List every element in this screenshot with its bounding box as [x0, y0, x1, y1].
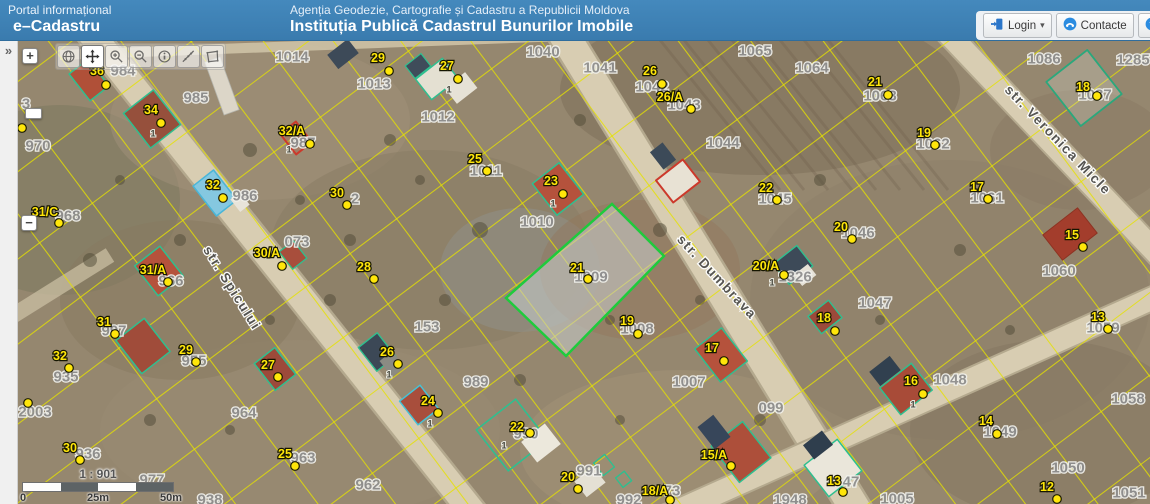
point-dot	[385, 67, 394, 76]
overview-globe-tool-button[interactable]	[57, 45, 80, 68]
point-label: 26	[643, 64, 657, 78]
parcel-number: 073	[284, 234, 309, 251]
point-dot	[434, 409, 443, 418]
point-dot	[76, 456, 85, 465]
map-canvas[interactable]: str. Spiculuistr. Dumbravastr. Veronica …	[18, 40, 1150, 504]
point-label: 19	[917, 126, 931, 140]
parcel-number: 1007	[672, 374, 705, 391]
point-dot	[291, 462, 300, 471]
parcel-number: 964	[231, 405, 257, 422]
point-sublabel: 1	[386, 370, 392, 381]
point-label: 20/A	[753, 259, 779, 273]
brand: Portal informațional e–Cadastru	[8, 3, 111, 36]
parcel-number: 985	[183, 90, 208, 107]
parcel-number: 1014	[275, 49, 309, 66]
parcel-number: 2	[351, 191, 359, 208]
point-label: 32	[206, 178, 220, 192]
zoom-out-tool-button[interactable]	[129, 45, 152, 68]
scale-ticks: 0 25m 50m	[22, 492, 174, 504]
measure-line-icon	[181, 49, 196, 64]
point-label: 26/A	[657, 90, 683, 104]
expand-panel-button[interactable]: »	[5, 43, 12, 58]
point-sublabel: 1	[550, 199, 556, 210]
point-dot	[55, 219, 64, 228]
login-icon	[990, 17, 1004, 34]
point-label: 12	[1040, 480, 1054, 494]
point-label: 25	[468, 152, 482, 166]
scale-bar	[22, 482, 174, 492]
point-label: 18	[817, 311, 831, 325]
point-label: 18/A	[642, 484, 668, 498]
point-dot	[370, 275, 379, 284]
point-label: 30	[63, 441, 77, 455]
point-dot	[526, 429, 535, 438]
point-label: 13	[827, 474, 841, 488]
point-dot	[102, 81, 111, 90]
header-actions: Login ▾ Contacte ?	[976, 11, 1150, 40]
point-label: 30	[330, 186, 344, 200]
agency-line2: Instituția Publică Cadastrul Bunurilor I…	[290, 18, 633, 36]
point-label: 25	[278, 447, 292, 461]
point-label: 31/A	[140, 263, 166, 277]
parcel-number: 989	[463, 374, 488, 391]
point-dot	[164, 278, 173, 287]
point-label: 18	[1076, 80, 1090, 94]
point-dot	[192, 358, 201, 367]
scale-tick: 25m	[87, 492, 109, 504]
parcel-number: 1051	[1112, 485, 1145, 502]
measure-area-tool-button[interactable]	[201, 45, 224, 68]
point-label: 34	[144, 103, 158, 117]
point-label: 24	[421, 394, 435, 408]
point-dot	[111, 330, 120, 339]
parcel-number: 1285	[1116, 52, 1149, 69]
point-label: 16	[904, 374, 918, 388]
point-dot	[574, 485, 583, 494]
point-sublabel: 1	[286, 145, 292, 156]
agency-line1: Agenția Geodezie, Cartografie și Cadastr…	[290, 3, 633, 17]
point-sublabel: 1	[769, 278, 775, 289]
point-label: 32/A	[279, 124, 305, 138]
parcel-number: 2003	[18, 404, 51, 421]
point-dot	[720, 357, 729, 366]
point-sublabel: 1	[910, 400, 916, 411]
point-label: 23	[544, 174, 558, 188]
pan-tool-button[interactable]	[81, 45, 104, 68]
point-dot	[884, 91, 893, 100]
point-label: 15	[1065, 228, 1079, 242]
point-sublabel: 1	[446, 85, 452, 96]
point-dot	[848, 235, 857, 244]
map-viewport[interactable]: str. Spiculuistr. Dumbravastr. Veronica …	[18, 40, 1150, 504]
info-icon	[157, 49, 172, 64]
point-dot	[658, 80, 667, 89]
parcel-number: 938	[197, 492, 222, 504]
point-dot	[306, 140, 315, 149]
point-label: 22	[759, 181, 773, 195]
point-label: 13	[1091, 310, 1105, 324]
scale-tick: 0	[20, 492, 26, 504]
point-label: 14	[979, 414, 993, 428]
zoom-in-tool-button[interactable]	[105, 45, 128, 68]
point-dot	[687, 105, 696, 114]
point-dot	[727, 462, 736, 471]
pan-icon	[85, 49, 100, 64]
question-icon: ?	[1145, 17, 1150, 34]
point-label: 17	[705, 341, 719, 355]
point-dot	[559, 190, 568, 199]
phone-icon	[1063, 17, 1077, 34]
point-dot	[634, 330, 643, 339]
parcel-number: 1064	[795, 60, 829, 77]
login-button[interactable]: Login ▾	[983, 13, 1052, 38]
point-dot	[219, 194, 228, 203]
identify-tool-button[interactable]	[153, 45, 176, 68]
parcel-number: 1044	[706, 135, 740, 152]
parcel-number: 1041	[583, 60, 616, 77]
point-dot	[157, 119, 166, 128]
parcel-number: 1065	[738, 43, 771, 60]
point-label: 15/A	[701, 448, 727, 462]
parcel-number: 991	[576, 463, 601, 480]
point-label: 27	[440, 59, 454, 73]
parcel-number: 1048	[933, 372, 966, 389]
parcel-number: 1040	[526, 44, 559, 61]
point-label: 31	[97, 315, 111, 329]
measure-area-icon	[205, 49, 220, 64]
parcel-number: 1086	[1027, 51, 1060, 68]
point-dot	[18, 124, 26, 133]
point-dot	[394, 360, 403, 369]
point-dot	[931, 141, 940, 150]
point-dot	[343, 201, 352, 210]
contacte-label: Contacte	[1081, 20, 1127, 32]
parcel-number: 1012	[421, 109, 454, 126]
agency-title: Agenția Geodezie, Cartografie și Cadastr…	[290, 3, 633, 36]
main-area: »	[0, 40, 1150, 504]
point-dot	[1053, 495, 1062, 504]
map-toolbar	[55, 43, 226, 70]
point-label: 28	[357, 260, 371, 274]
scale-tick: 50m	[160, 492, 182, 504]
point-dot	[1093, 92, 1102, 101]
point-sublabel: 1	[501, 441, 507, 452]
point-dot	[454, 75, 463, 84]
point-label: 21	[570, 261, 584, 275]
parcel-number: 1013	[357, 76, 390, 93]
parcel-number: 1005	[880, 491, 913, 504]
globe-icon	[61, 49, 76, 64]
point-label: 20	[561, 470, 575, 484]
point-dot	[984, 195, 993, 204]
parcel-number: 970	[25, 138, 50, 155]
point-label: 26	[380, 345, 394, 359]
contacte-button[interactable]: Contacte	[1056, 13, 1134, 38]
point-dot	[483, 167, 492, 176]
point-label: 22	[510, 420, 524, 434]
parcel-number: 1060	[1042, 263, 1075, 280]
point-label: 20	[834, 220, 848, 234]
parcel-number: 962	[355, 477, 380, 494]
zoom-out-icon	[133, 49, 148, 64]
measure-distance-tool-button[interactable]	[177, 45, 200, 68]
zoom-in-icon	[109, 49, 124, 64]
parcel-number: 1047	[858, 295, 891, 312]
point-label: 19	[620, 314, 634, 328]
point-dot	[278, 262, 287, 271]
parcel-number: 986	[232, 188, 257, 205]
side-panel-collapsed: »	[0, 40, 18, 504]
portal-label: Portal informațional	[8, 3, 111, 17]
point-sublabel: 1	[427, 419, 433, 430]
scale-control: 1 : 901 0 25m 50m	[22, 467, 174, 504]
point-label: 17	[970, 180, 984, 194]
chevron-down-icon: ▾	[1040, 20, 1045, 31]
zoom-slider-handle[interactable]	[25, 108, 42, 119]
parcel-number: 1010	[520, 214, 553, 231]
zoom-in-button[interactable]: +	[22, 48, 38, 64]
point-label: 29	[371, 51, 385, 65]
point-dot	[780, 271, 789, 280]
app-header: Portal informațional e–Cadastru Agenția …	[0, 0, 1150, 41]
point-dot	[773, 196, 782, 205]
point-label: 29	[179, 343, 193, 357]
zoom-out-button[interactable]: −	[21, 215, 37, 231]
point-dot	[65, 364, 74, 373]
scale-ratio: 1 : 901	[22, 467, 174, 481]
parcel-number: 1058	[1111, 391, 1144, 408]
point-dot	[831, 327, 840, 336]
point-dot	[274, 373, 283, 382]
point-sublabel: 1	[150, 129, 156, 140]
parcel-number: 1948	[773, 492, 806, 504]
point-dot	[1079, 243, 1088, 252]
parcel-number: 992	[616, 492, 641, 504]
ecadastru-app: Portal informațional e–Cadastru Agenția …	[0, 0, 1150, 504]
point-dot	[839, 488, 848, 497]
ghid-button[interactable]: ? Ghidu	[1138, 13, 1150, 38]
parcel-number: 153	[414, 319, 439, 336]
point-label: 21	[868, 75, 882, 89]
point-label: 32	[53, 349, 67, 363]
app-title: e–Cadastru	[13, 18, 111, 36]
point-dot	[584, 275, 593, 284]
point-dot	[1104, 325, 1113, 334]
point-dot	[993, 430, 1002, 439]
parcel-number: 099	[758, 400, 783, 417]
login-label: Login	[1008, 20, 1036, 32]
point-dot	[919, 390, 928, 399]
point-label: 30/A	[254, 246, 280, 260]
parcel-number: 1050	[1051, 460, 1084, 477]
point-label: 27	[261, 358, 275, 372]
point-dot	[24, 399, 33, 408]
